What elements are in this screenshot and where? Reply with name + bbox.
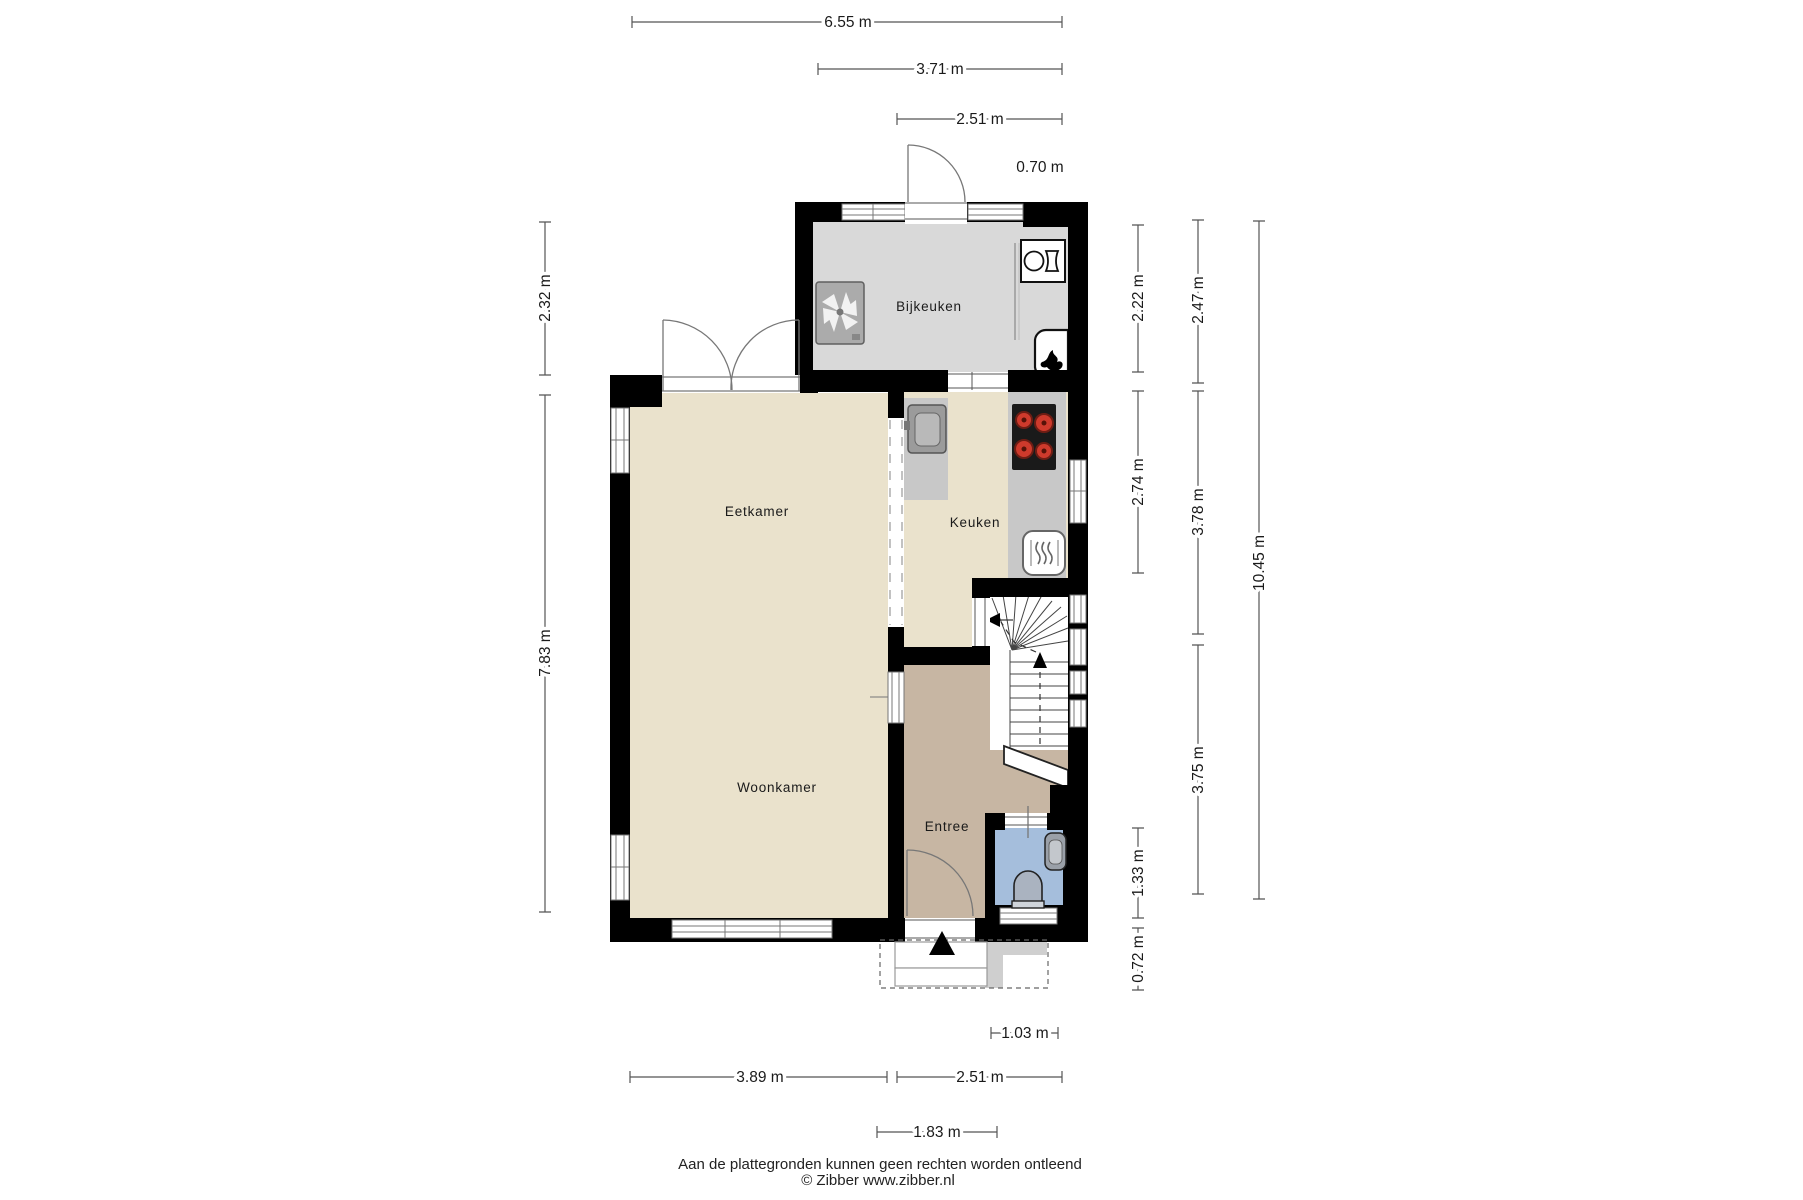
svg-text:0.72 m: 0.72 m: [1130, 935, 1147, 982]
window-woonkamer-south: [672, 920, 832, 938]
svg-text:2.22 m: 2.22 m: [1130, 274, 1147, 321]
svg-text:3.71 m: 3.71 m: [916, 61, 963, 78]
window-stairs-4: [1070, 700, 1086, 727]
svg-text:1.83 m: 1.83 m: [913, 1124, 960, 1141]
dim-bottom-2: 3.89 m: [630, 1069, 887, 1086]
dim-bottom-3: 2.51 m: [897, 1069, 1062, 1086]
svg-text:2.47 m: 2.47 m: [1190, 276, 1207, 323]
window-eetkamer: [611, 408, 629, 473]
window-bijkeuken-left: [842, 204, 905, 220]
french-doors: [662, 320, 800, 393]
window-stairs-3: [1070, 671, 1086, 694]
dim-right-3: 1.33 m: [1130, 828, 1147, 918]
window-bijkeuken-right: [968, 204, 1023, 220]
svg-text:1.03 m: 1.03 m: [1001, 1025, 1048, 1042]
boiler-icon: [1035, 330, 1068, 377]
fan-unit-icon: [816, 282, 864, 344]
svg-text:3.75 m: 3.75 m: [1190, 746, 1207, 793]
dim-top-1: 6.55 m: [632, 14, 1062, 31]
washing-machine-icon: [1021, 240, 1065, 282]
dim-right-2: 2.74 m: [1130, 391, 1147, 573]
bijkeuken-keuken-opening: [948, 372, 1008, 390]
svg-text:0.70 m: 0.70 m: [1016, 159, 1063, 176]
kitchen-sink-icon: [901, 405, 946, 453]
dim-right-4: 0.72 m: [1130, 928, 1147, 990]
window-stairs-1: [1070, 595, 1086, 623]
dim-left-2: 7.83 m: [537, 395, 554, 912]
dim-right-6: 3.78 m: [1190, 391, 1207, 634]
dim-bottom-4: 1.83 m: [877, 1124, 997, 1141]
bijkeuken-door: [905, 145, 967, 224]
label-keuken: Keuken: [950, 515, 1001, 530]
svg-text:1.33 m: 1.33 m: [1130, 849, 1147, 896]
basin-icon: [1045, 833, 1066, 870]
window-keuken: [1070, 460, 1086, 523]
svg-text:2.51 m: 2.51 m: [956, 111, 1003, 128]
svg-text:7.83 m: 7.83 m: [537, 629, 554, 676]
svg-text:2.51 m: 2.51 m: [956, 1069, 1003, 1086]
dim-top-3: 2.51 m: [897, 111, 1062, 128]
svg-text:10.45 m: 10.45 m: [1251, 535, 1268, 591]
window-stairs-2: [1070, 629, 1086, 665]
label-eetkamer: Eetkamer: [725, 504, 789, 519]
label-bijkeuken: Bijkeuken: [896, 299, 962, 314]
dim-right-1: 2.22 m: [1130, 225, 1147, 372]
footer-disclaimer: Aan de plattegronden kunnen geen rechten…: [678, 1156, 1082, 1173]
window-toilet: [1000, 908, 1057, 924]
svg-text:3.89 m: 3.89 m: [736, 1069, 783, 1086]
dim-right-7: 3.75 m: [1190, 645, 1207, 894]
toilet-icon: [1012, 871, 1044, 908]
footer-copyright: © Zibber www.zibber.nl: [801, 1172, 955, 1189]
label-woonkamer: Woonkamer: [737, 780, 817, 795]
svg-text:2.32 m: 2.32 m: [537, 274, 554, 321]
dim-bottom-1: 1.03 m: [991, 1025, 1058, 1042]
window-woonkamer: [611, 835, 629, 900]
heater-icon: [1023, 531, 1065, 575]
floor-plan-page: 6.55 m 3.71 m 2.51 m 0.70 m 2.32 m 7.83 …: [0, 0, 1803, 1200]
svg-text:2.74 m: 2.74 m: [1130, 458, 1147, 505]
dim-left-1: 2.32 m: [537, 222, 554, 375]
dim-top-4: 0.70 m: [1016, 159, 1063, 176]
dim-right-8: 10.45 m: [1251, 221, 1268, 899]
stove-icon: [1012, 404, 1056, 470]
svg-text:3.78 m: 3.78 m: [1190, 488, 1207, 535]
room-divider-opening: [888, 418, 904, 627]
footer: Aan de plattegronden kunnen geen rechten…: [678, 1156, 1082, 1189]
floor-plan: 6.55 m 3.71 m 2.51 m 0.70 m 2.32 m 7.83 …: [0, 0, 1803, 1200]
stairs-door-opening: [972, 598, 990, 646]
label-entree: Entree: [925, 819, 970, 834]
dim-top-2: 3.71 m: [818, 61, 1062, 78]
dim-right-5: 2.47 m: [1190, 220, 1207, 383]
svg-text:6.55 m: 6.55 m: [824, 14, 871, 31]
